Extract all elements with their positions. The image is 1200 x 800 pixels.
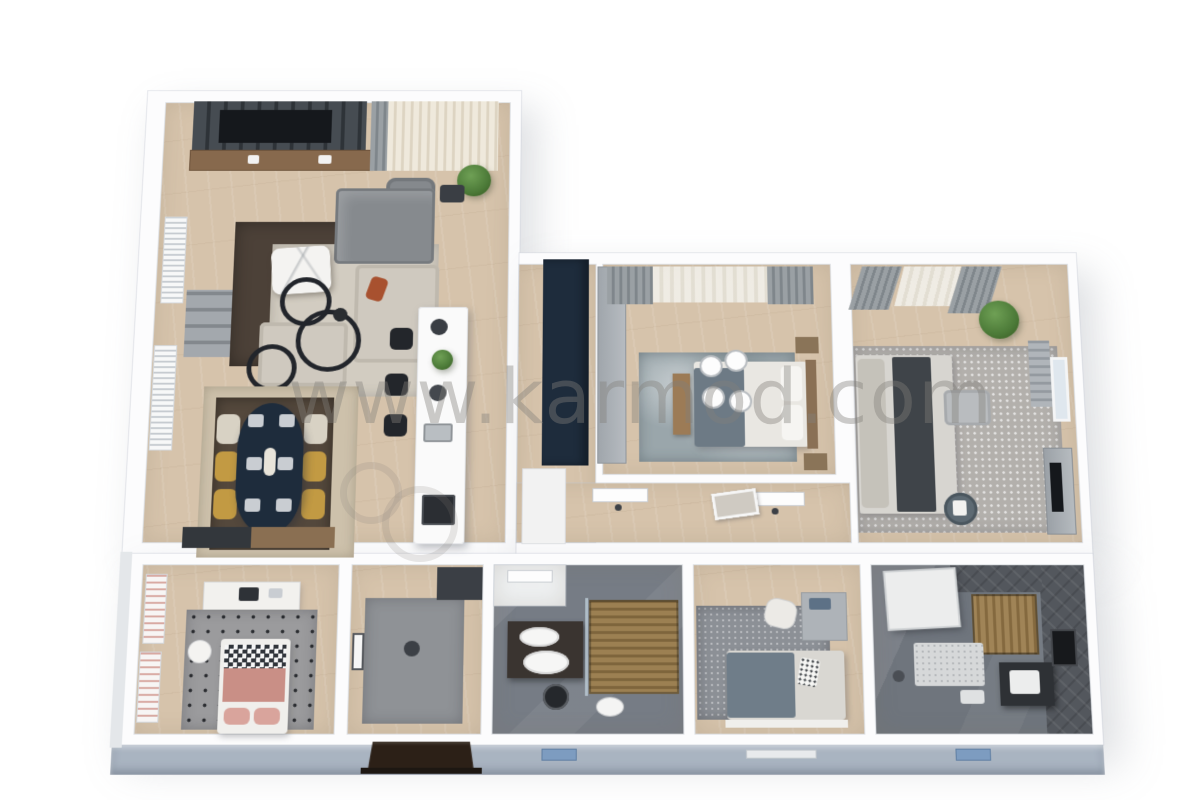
bed1-nightstand [795, 337, 818, 353]
place-setting [277, 457, 293, 470]
living-curtain-edge [370, 101, 389, 170]
bath2-bath-mat [913, 643, 984, 686]
hall-door-leaf [593, 489, 647, 501]
bed3-patterned-pillow [797, 657, 821, 688]
bath2-wall-mirror [1050, 629, 1078, 666]
kitchen-white-counter [521, 468, 566, 544]
bed1-curtain-right [767, 266, 814, 304]
chaise-sofa [334, 188, 436, 263]
kid-laptop [239, 587, 259, 601]
bed1-nightstand [804, 453, 828, 470]
entry-wall-frame [351, 633, 364, 670]
bath1-sink-oval [523, 651, 569, 675]
living-side-table [440, 185, 465, 203]
place-setting [244, 498, 260, 511]
bath2-dark-tile-top [950, 565, 1042, 592]
bed3-dresser-items [809, 598, 831, 610]
place-setting [246, 457, 262, 470]
bath2-sink [1009, 670, 1040, 694]
table-centerpiece [263, 448, 276, 476]
kid-pink-pillow [253, 708, 280, 725]
kid-checkered-blanket [224, 645, 287, 669]
bed1-curtain-sheer [653, 266, 768, 302]
hall-door-knob [772, 508, 779, 515]
living-window-shutter-1 [161, 217, 186, 302]
bath2-drain [892, 670, 904, 682]
bath1-toilet [597, 698, 623, 716]
entry-gray-rug [362, 598, 464, 724]
dining-sideboard [182, 527, 335, 548]
facade-window-blue-left [541, 749, 576, 761]
watermark-logo-ring [382, 486, 458, 562]
floor-plan-canvas: www.karmod.com [0, 0, 1200, 800]
dining-chair-mustard [301, 489, 326, 519]
kid-striped-blinds-1 [143, 575, 166, 643]
bath1-round-mirror [543, 684, 569, 710]
hall-door-knob [615, 504, 622, 511]
bath1-shower-glass [585, 598, 588, 696]
place-setting [248, 414, 264, 427]
bath1-door-leaf [508, 571, 552, 582]
bar-stool [390, 328, 414, 350]
tv-screen [219, 110, 333, 143]
kid-pink-pillow [223, 708, 250, 725]
bath1-wood-slat-shower [589, 600, 679, 694]
bed3-footboard [725, 720, 848, 728]
console-decor [248, 155, 260, 164]
living-curtains [370, 101, 499, 170]
dining-chair-mustard [213, 489, 238, 519]
kid-striped-blinds-2 [137, 653, 161, 722]
bed2-side-table-book [953, 500, 967, 515]
kid-desk-item [268, 588, 282, 598]
place-setting [276, 498, 292, 511]
kid-pink-blanket [222, 668, 285, 702]
bath1-sink-oval [519, 627, 559, 647]
dining-chair-cream [216, 414, 241, 444]
entrance-step [361, 768, 482, 774]
facade-window-blue-right [955, 749, 991, 761]
bed2-window-right [1050, 357, 1071, 422]
bed2-plant [978, 301, 1020, 339]
bath2-soap-set [960, 690, 985, 704]
bath2-shower-tray [885, 569, 959, 629]
bed3-blue-gray-blanket [727, 653, 796, 718]
entry-dark-wardrobe [437, 567, 483, 600]
facade-window-sill-center [746, 750, 817, 759]
dining-chair-mustard [302, 451, 326, 481]
bed1-curtain-left [607, 266, 653, 304]
watermark-text: www.karmod.com [288, 352, 994, 441]
bed2-wall-shelf [1028, 341, 1053, 407]
entrance-door [368, 742, 474, 770]
console-decor [318, 155, 331, 164]
bed2-tv [1050, 463, 1064, 512]
